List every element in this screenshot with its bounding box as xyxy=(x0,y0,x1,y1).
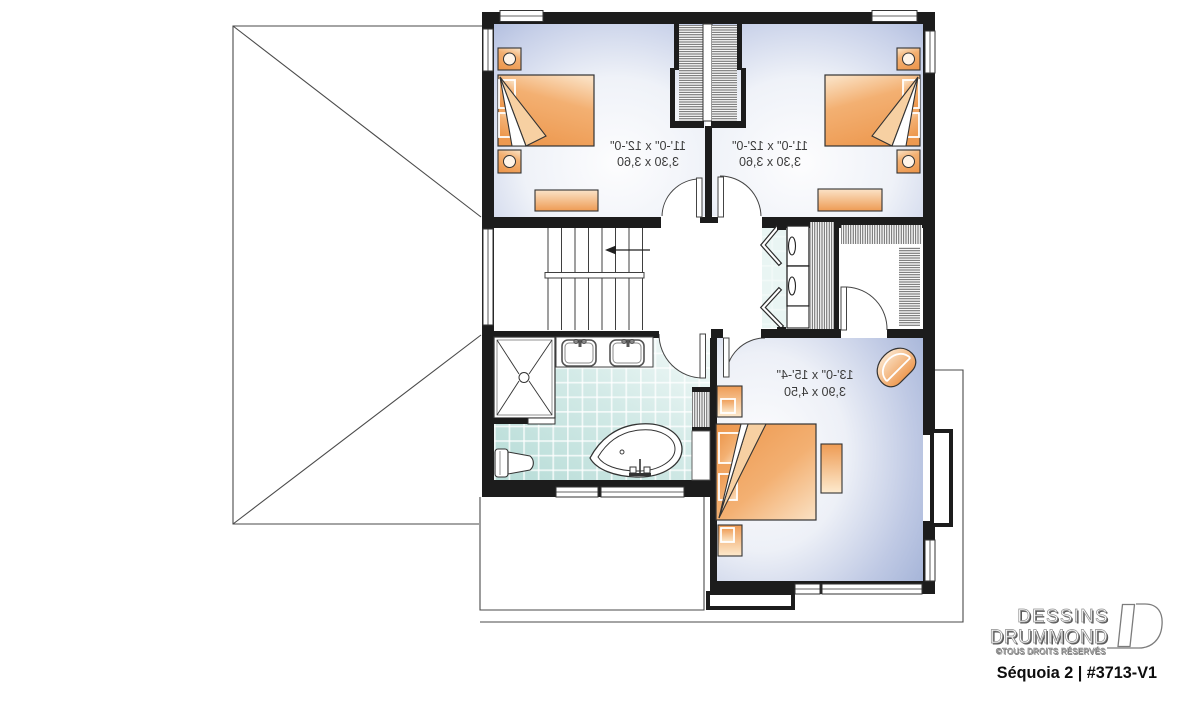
svg-text:DESSINS: DESSINS xyxy=(1017,605,1109,626)
svg-text:3,30 x 3,60: 3,30 x 3,60 xyxy=(617,155,679,169)
svg-text:13'-0" x 15'-4": 13'-0" x 15'-4" xyxy=(777,368,854,382)
svg-text:DRUMMOND: DRUMMOND xyxy=(990,627,1108,648)
svg-text:©TOUS DROITS RÉSERVÉS: ©TOUS DROITS RÉSERVÉS xyxy=(996,647,1106,656)
svg-text:3,90 x 4,50: 3,90 x 4,50 xyxy=(784,385,846,399)
svg-text:11'-0" x 12'-0": 11'-0" x 12'-0" xyxy=(610,139,686,153)
svg-text:Séquoia 2 | #3713-V1: Séquoia 2 | #3713-V1 xyxy=(997,664,1157,682)
svg-text:3,30 x 3,60: 3,30 x 3,60 xyxy=(739,155,801,169)
svg-text:11'-0" x 12'-0": 11'-0" x 12'-0" xyxy=(732,139,808,153)
